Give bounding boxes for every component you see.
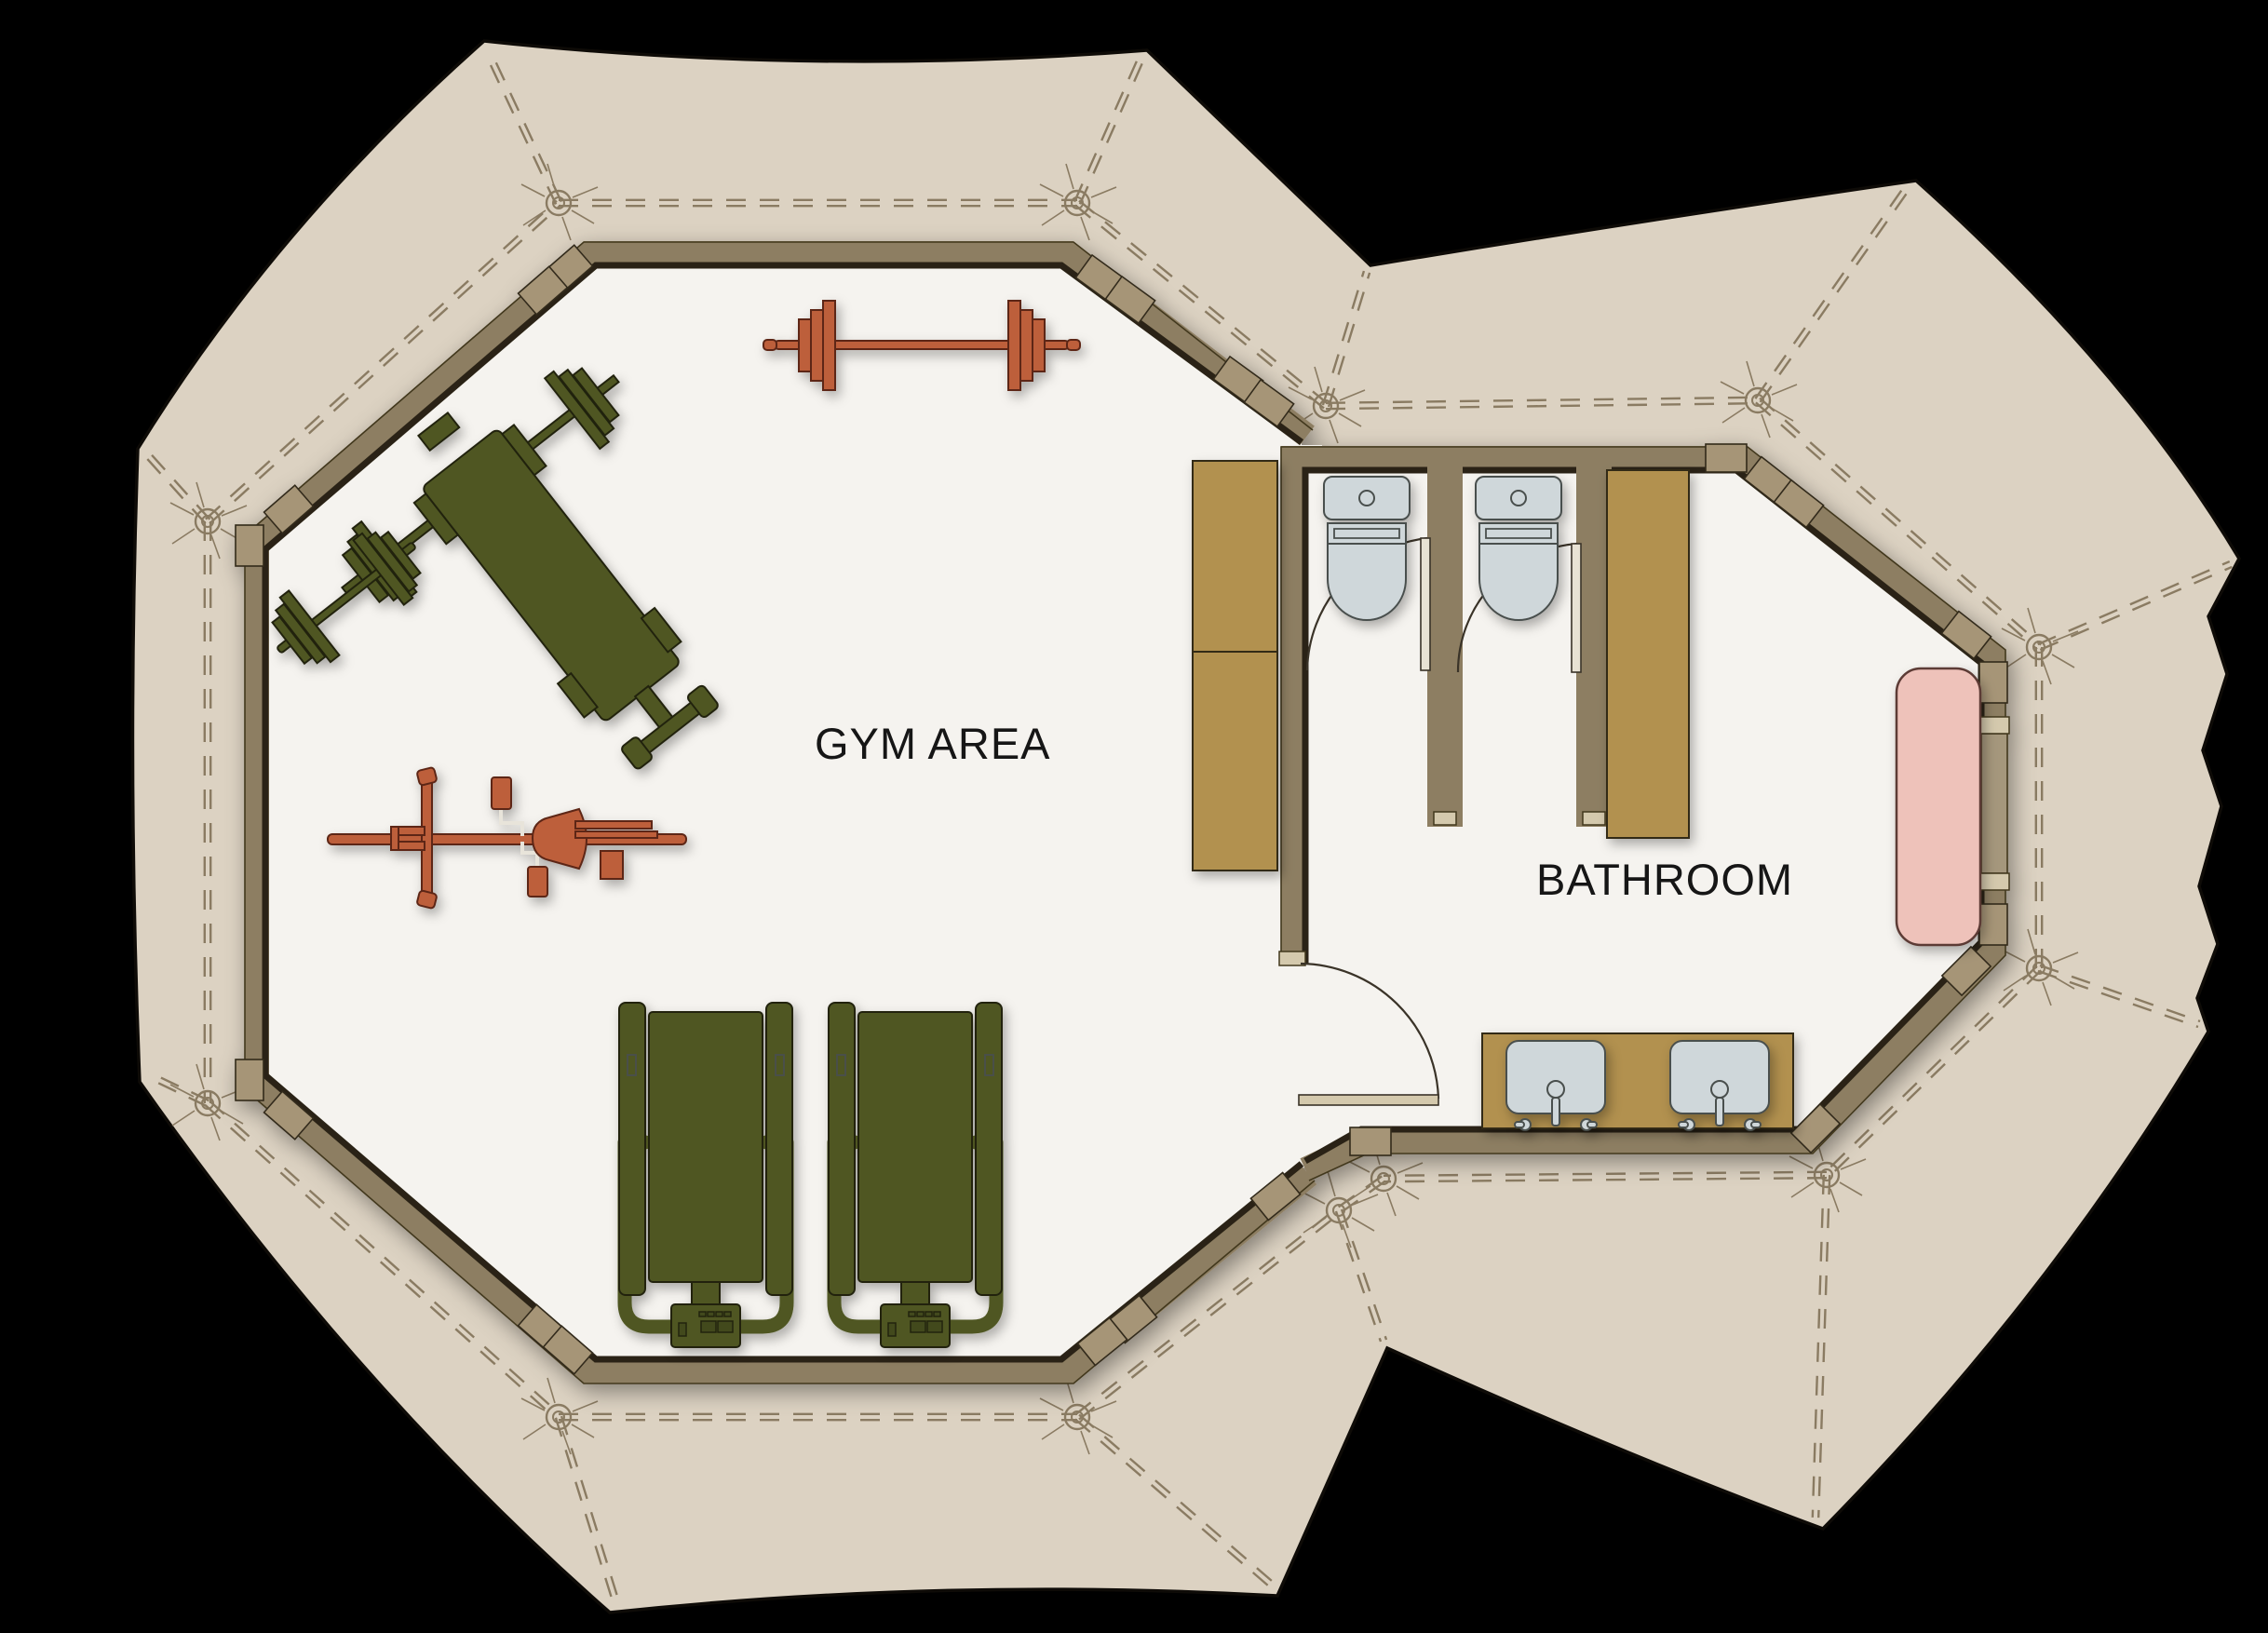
- toilet-icon: [1324, 477, 1410, 620]
- gym-area-label: GYM AREA: [815, 719, 1051, 768]
- stall-partition: [1439, 470, 1451, 815]
- wall-connector-block: [1706, 444, 1747, 472]
- wall-connector-block: [1979, 904, 2007, 945]
- toilet-icon: [1476, 477, 1561, 620]
- partition-end-cap: [1583, 812, 1605, 825]
- partition-end-cap: [1434, 812, 1456, 825]
- side-door: [1979, 717, 2009, 890]
- corridor-storage-cabinet: [1193, 461, 1277, 870]
- wall-connector-block: [1350, 1127, 1391, 1155]
- bathroom-bench-seat: [1897, 668, 1980, 945]
- floor-plan-stage: GYM AREA BATHROOM: [0, 0, 2268, 1633]
- bathroom-storage-cabinet: [1607, 470, 1689, 838]
- wall-connector-block: [1979, 662, 2007, 703]
- floor-plan-drawing: GYM AREA BATHROOM: [0, 0, 2268, 1633]
- bathroom-label: BATHROOM: [1536, 855, 1793, 904]
- wall-connector-block: [236, 1059, 263, 1100]
- stall-partition: [1588, 470, 1600, 815]
- wall-connector-block: [236, 525, 263, 566]
